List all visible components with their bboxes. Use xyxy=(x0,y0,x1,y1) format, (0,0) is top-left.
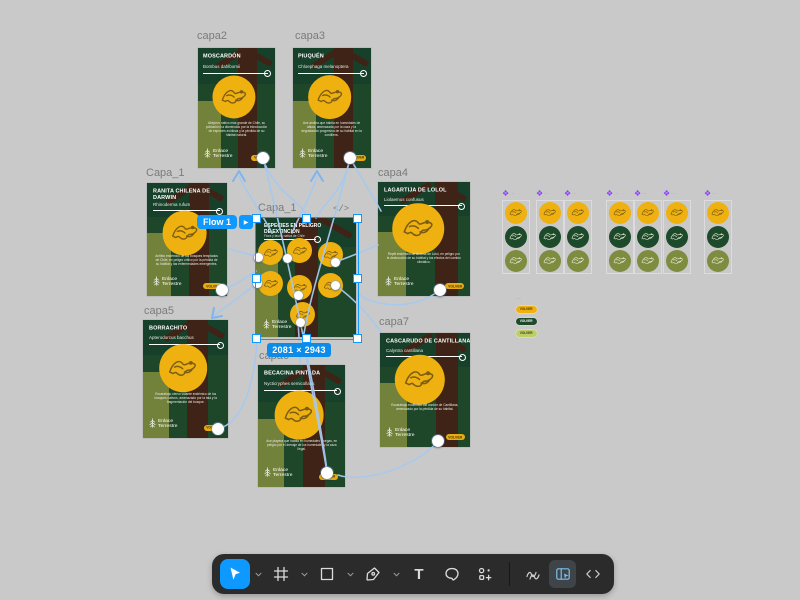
poster-title: BECACINA PINTADA xyxy=(264,370,345,376)
divider-line xyxy=(203,73,268,74)
shape-tool-button[interactable] xyxy=(312,559,342,589)
frame-label-capa1-left[interactable]: Capa_1 xyxy=(146,167,185,179)
button-variant-yellow[interactable]: VOLVER xyxy=(516,306,537,313)
pen-tool-button[interactable] xyxy=(358,559,388,589)
poster-species: Liolaemus confusus xyxy=(384,197,469,202)
component-set-label: ··· xyxy=(642,191,647,196)
poster-description: Ave playera que habita en humedales y ve… xyxy=(266,439,337,451)
actions-tool-button[interactable] xyxy=(470,559,500,589)
poster-capa3[interactable]: PIUQUÉN Chloephaga melanoptera Ave andin… xyxy=(293,48,371,168)
species-illustration-circle xyxy=(213,76,256,119)
frame-label-capa7[interactable]: capa7 xyxy=(379,316,409,328)
variant-circle-olive[interactable] xyxy=(539,250,561,272)
animal-illustration xyxy=(312,79,348,115)
species-illustration-circle xyxy=(393,203,445,255)
poster-title: MOSCARDÓN xyxy=(203,53,275,59)
animal-illustration xyxy=(541,228,559,246)
poster-title: CASCARUDO DE CANTILLANA xyxy=(386,338,470,344)
component-set-icon: ❖ xyxy=(663,190,670,198)
animal-illustration xyxy=(709,204,727,222)
variant-circle-green[interactable] xyxy=(666,226,688,248)
poster-title: RANITA CHILENA DE DARWIN xyxy=(153,188,227,201)
toolbar: T xyxy=(212,554,614,594)
variant-circle-green[interactable] xyxy=(609,226,631,248)
connection-node[interactable] xyxy=(321,467,333,479)
animal-illustration xyxy=(397,208,439,250)
connection-node[interactable] xyxy=(283,254,292,263)
dev-code-mode-button[interactable] xyxy=(579,560,606,588)
poster-capa1-left[interactable]: RANITA CHILENA DE DARWIN Rhinoderma rufu… xyxy=(147,183,227,296)
component-set-3[interactable]: ❖ ··· xyxy=(564,189,592,274)
button-component-group: ··· VOLVER VOLVER VOLVER xyxy=(516,294,537,342)
animal-illustration xyxy=(569,228,587,246)
component-set-5[interactable]: ❖ ··· xyxy=(634,189,662,274)
dev-mode-frame-icon[interactable]: </> xyxy=(333,204,349,214)
variant-circle-green[interactable] xyxy=(637,226,659,248)
selection-handle[interactable] xyxy=(353,274,362,283)
logo: EnlaceTerrestre xyxy=(384,272,430,291)
component-set-icon: ❖ xyxy=(606,190,613,198)
poster-description: Ave andina que habita en humedales de al… xyxy=(300,121,364,138)
dimensions-badge: 2081 × 2943 xyxy=(267,343,331,357)
poster-species: Apterodorcus bacchus xyxy=(149,335,228,340)
connection-node[interactable] xyxy=(257,152,269,164)
inspect-mode-button[interactable] xyxy=(549,560,576,588)
selection-handle[interactable] xyxy=(252,334,261,343)
variant-circle-olive[interactable] xyxy=(567,250,589,272)
selection-handle[interactable] xyxy=(353,214,362,223)
selection-handle[interactable] xyxy=(302,214,311,223)
back-button[interactable]: VOLVER xyxy=(446,434,465,440)
poster-capa2[interactable]: MOSCARDÓN Bombus dahlbomii Abejorro nati… xyxy=(198,48,275,168)
animal-illustration xyxy=(569,204,587,222)
animal-illustration xyxy=(507,252,525,270)
variant-circle-olive[interactable] xyxy=(505,250,527,272)
animal-illustration xyxy=(639,228,657,246)
variant-circle-olive[interactable] xyxy=(666,250,688,272)
animal-illustration xyxy=(611,204,629,222)
poster-title: LAGARTIJA DE LOLOL xyxy=(384,187,470,193)
tree-logo-icon xyxy=(148,417,157,429)
divider-ring xyxy=(216,208,223,215)
component-set-label: ··· xyxy=(614,191,619,196)
connection-node[interactable] xyxy=(432,435,444,447)
poster-description: Escarabajo endémico del cordón de Cantil… xyxy=(388,403,461,411)
variant-stack xyxy=(536,200,564,274)
animal-illustration xyxy=(611,228,629,246)
variant-circle-yellow[interactable] xyxy=(539,202,561,224)
animal-illustration xyxy=(507,204,525,222)
connection-node[interactable] xyxy=(344,152,356,164)
variant-stack xyxy=(704,200,732,274)
animal-illustration xyxy=(290,241,310,261)
animal-illustration xyxy=(279,395,319,435)
species-illustration-circle xyxy=(275,391,324,440)
tree-logo-icon xyxy=(385,426,394,438)
component-set-6[interactable]: ❖ ··· xyxy=(663,189,691,274)
logo: EnlaceTerrestre xyxy=(385,423,431,442)
pen-tool-dropdown[interactable] xyxy=(391,559,401,589)
component-set-label: ··· xyxy=(712,191,717,196)
animal-illustration xyxy=(639,252,657,270)
variant-circle-yellow[interactable] xyxy=(505,202,527,224)
variant-stack xyxy=(634,200,662,274)
poster-title: PIUQUÉN xyxy=(298,53,371,59)
animal-illustration xyxy=(611,252,629,270)
component-set-label: ··· xyxy=(572,191,577,196)
move-tool-button[interactable] xyxy=(220,559,250,589)
variant-circle-green[interactable] xyxy=(707,226,729,248)
animal-illustration xyxy=(261,243,281,263)
connection-node[interactable] xyxy=(296,318,305,327)
button-group-label: ··· xyxy=(516,296,529,301)
design-canvas[interactable]: capa2 capa3 Capa_1 Capa_1 </> capa4 capa… xyxy=(0,0,800,600)
poster-description: Reptil endémico de la zona de Lolol, en … xyxy=(386,252,461,264)
frame-label-menu[interactable]: Capa_1 xyxy=(258,202,297,214)
variant-circle-yellow[interactable] xyxy=(707,202,729,224)
variant-stack xyxy=(564,200,592,274)
animal-illustration xyxy=(668,228,686,246)
logo: EnlaceTerrestre xyxy=(148,414,194,433)
animal-illustration xyxy=(709,252,727,270)
tree-logo-icon xyxy=(152,275,161,287)
shape-tool-dropdown[interactable] xyxy=(345,559,355,589)
poster-title: BORRACHITO xyxy=(149,325,228,331)
animal-illustration xyxy=(217,80,252,115)
variant-stack xyxy=(502,200,530,274)
menu-item-circle[interactable] xyxy=(258,271,283,296)
logo: EnlaceTerrestre xyxy=(263,463,309,482)
move-tool-dropdown[interactable] xyxy=(253,559,263,589)
component-set-4[interactable]: ❖ ··· xyxy=(606,189,634,274)
component-set-1[interactable]: ❖ ··· xyxy=(502,189,530,274)
frame-label-capa5[interactable]: capa5 xyxy=(144,305,174,317)
component-set-label: ··· xyxy=(510,191,515,196)
poster-menu[interactable]: ESPECIES EN PELIGRODE EXTINCIÓN Flora y … xyxy=(256,218,356,337)
poster-description: Anfibio endémico de los bosques templado… xyxy=(154,254,219,266)
animal-illustration xyxy=(399,359,440,400)
tree-logo-icon xyxy=(203,147,212,159)
frame-label-capa2[interactable]: capa2 xyxy=(197,30,227,42)
logo: EnlaceTerrestre xyxy=(298,144,344,163)
poster-capa7[interactable]: CASCARUDO DE CANTILLANA Calyntra cantill… xyxy=(380,333,470,447)
component-set-2[interactable]: ❖ ··· xyxy=(536,189,564,274)
connection-node[interactable] xyxy=(434,284,446,296)
tree-logo-icon xyxy=(262,318,271,330)
species-illustration-circle xyxy=(308,75,352,119)
animal-illustration xyxy=(541,252,559,270)
component-set-icon: ❖ xyxy=(502,190,509,198)
tree-logo-icon xyxy=(263,466,272,478)
connection-node[interactable] xyxy=(331,281,340,290)
frame-label-capa4[interactable]: capa4 xyxy=(378,167,408,179)
comment-tool-button[interactable] xyxy=(437,559,467,589)
logo: EnlaceTerrestre xyxy=(203,144,249,163)
poster-capa4[interactable]: LAGARTIJA DE LOLOL Liolaemus confusus Re… xyxy=(378,182,470,296)
prototype-connections xyxy=(0,0,800,600)
species-illustration-circle xyxy=(159,345,207,393)
variant-circle-green[interactable] xyxy=(567,226,589,248)
poster-species: Calyntra cantillana xyxy=(386,348,469,353)
variant-circle-olive[interactable] xyxy=(637,250,659,272)
variant-circle-yellow[interactable] xyxy=(567,202,589,224)
connection-node[interactable] xyxy=(331,258,340,267)
animal-illustration xyxy=(507,228,525,246)
toolbar-divider xyxy=(509,562,510,586)
logo: EnlaceTerrestre xyxy=(152,272,198,291)
variant-circle-olive[interactable] xyxy=(609,250,631,272)
variant-stack xyxy=(606,200,634,274)
animal-illustration xyxy=(668,252,686,270)
animal-illustration xyxy=(261,274,281,294)
menu-item-circle[interactable] xyxy=(258,240,283,265)
variant-circle-green[interactable] xyxy=(505,226,527,248)
connection-node[interactable] xyxy=(212,423,224,435)
connection-node[interactable] xyxy=(216,284,228,296)
variant-circle-green[interactable] xyxy=(539,226,561,248)
poster-species: Chloephaga melanoptera xyxy=(298,64,370,69)
variant-circle-olive[interactable] xyxy=(707,250,729,272)
animal-illustration xyxy=(541,204,559,222)
poster-species: Rhinoderma rufum xyxy=(153,202,227,207)
divider-ring xyxy=(217,342,224,349)
menu-title: ESPECIES EN PELIGRODE EXTINCIÓN xyxy=(264,223,339,235)
connection-node[interactable] xyxy=(294,291,303,300)
frame-tool-button[interactable] xyxy=(266,559,296,589)
component-set-icon: ❖ xyxy=(634,190,641,198)
variant-stack xyxy=(663,200,691,274)
button-variant-light-green[interactable]: VOLVER xyxy=(516,330,537,337)
connection-node[interactable] xyxy=(254,253,263,262)
divider-line xyxy=(298,73,364,74)
tree-logo-icon xyxy=(384,275,393,287)
variant-circle-yellow[interactable] xyxy=(609,202,631,224)
frame-tool-dropdown[interactable] xyxy=(299,559,309,589)
selection-handle[interactable] xyxy=(252,274,261,283)
flow-badge[interactable]: Flow 1 xyxy=(197,215,237,229)
text-tool-button[interactable]: T xyxy=(404,559,434,589)
animal-illustration xyxy=(709,228,727,246)
component-set-label: ··· xyxy=(671,191,676,196)
selection-handle[interactable] xyxy=(353,334,362,343)
poster-description: Escarabajo ciervo volante endémico de lo… xyxy=(151,392,220,404)
species-illustration-circle xyxy=(394,355,444,405)
tree-logo-icon xyxy=(298,147,307,159)
flow-play-icon[interactable]: ▶ xyxy=(239,215,253,229)
menu-subtitle: Flora y fauna nativa de Chile xyxy=(264,234,352,238)
button-variant-dark-green[interactable]: VOLVER xyxy=(516,318,537,325)
back-button[interactable]: VOLVER xyxy=(445,283,464,289)
poster-description: Abejorro nativo más grande de Chile, su … xyxy=(205,121,268,138)
component-set-icon: ❖ xyxy=(704,190,711,198)
animal-illustration xyxy=(639,204,657,222)
poster-species: Bombus dahlbomii xyxy=(203,64,274,69)
divider-ring xyxy=(334,388,341,395)
frame-label-capa3[interactable]: capa3 xyxy=(295,30,325,42)
variant-circle-yellow[interactable] xyxy=(637,202,659,224)
component-set-label: ··· xyxy=(544,191,549,196)
variant-circle-yellow[interactable] xyxy=(666,202,688,224)
draw-mode-button[interactable] xyxy=(519,560,546,588)
component-set-icon: ❖ xyxy=(564,190,571,198)
poster-capa5[interactable]: BORRACHITO Apterodorcus bacchus Escaraba… xyxy=(143,320,228,438)
component-set-7[interactable]: ❖ ··· xyxy=(704,189,732,274)
component-set-icon: ❖ xyxy=(536,190,543,198)
poster-species: Nycticryphes semicollaris xyxy=(264,381,344,386)
divider-ring xyxy=(459,354,466,361)
animal-illustration xyxy=(569,252,587,270)
animal-illustration xyxy=(163,349,202,388)
animal-illustration xyxy=(668,204,686,222)
selection-handle[interactable] xyxy=(252,214,261,223)
selection-handle[interactable] xyxy=(302,334,311,343)
